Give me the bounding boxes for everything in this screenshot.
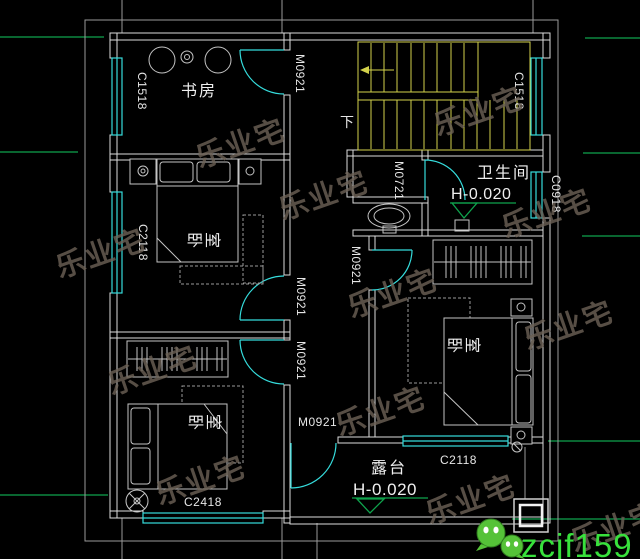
elevation-bathroom: H-0.020 <box>451 186 511 203</box>
room-label-bathroom: 卫生间 <box>477 164 531 182</box>
door-terrace <box>291 443 336 488</box>
watermark: 乐业宅 <box>519 294 618 356</box>
door-bedroom-mid <box>240 276 284 320</box>
wechat-id-text: zcjf159 <box>521 527 633 559</box>
room-label-terrace: 露台 <box>371 459 407 477</box>
room-label-study: 书房 <box>181 82 217 100</box>
stair-direction-arrow <box>360 66 394 74</box>
watermark: 乐业宅 <box>497 182 596 244</box>
watermark: 乐业宅 <box>421 468 520 530</box>
window-c2418-bottom <box>143 513 263 523</box>
study-furniture <box>149 47 231 73</box>
floor-plan-svg: 书房 卫生间 露台 卧室 卧室 卧室 H-0.020 H-0.020 M0921… <box>0 0 640 559</box>
door-bedroom-bottom <box>240 340 284 384</box>
door-label-m0721: M0721 <box>392 161 406 200</box>
window-label-c1518-left: C1518 <box>135 72 149 110</box>
window-label-c2118-terrace: C2118 <box>440 453 477 467</box>
watermark: 乐业宅 <box>51 222 150 284</box>
window-c1518-left <box>112 58 122 135</box>
door-label-m0921-right: M0921 <box>349 246 363 285</box>
door-study <box>240 50 284 94</box>
basin-pedestal <box>455 220 469 231</box>
watermark: 乐业宅 <box>429 80 528 142</box>
stair-down-label: 下 <box>340 114 355 130</box>
door-label-m0921-study: M0921 <box>293 54 307 93</box>
wechat-icon <box>476 519 525 559</box>
window-c1518-stairs <box>531 58 542 135</box>
bedroom-mid-furniture <box>130 159 263 284</box>
window-c2118-terrace <box>403 436 508 446</box>
door-label-m0921-bottom: M0921 <box>294 341 308 380</box>
elevation-terrace: H-0.020 <box>353 480 417 499</box>
door-label-m0921-mid: M0921 <box>294 277 308 316</box>
axis-lines <box>0 0 640 559</box>
floor-plan-canvas: 书房 卫生间 露台 卧室 卧室 卧室 H-0.020 H-0.020 M0921… <box>0 0 640 559</box>
door-label-m0921-terrace: M0921 <box>298 415 337 429</box>
watermark: 乐业宅 <box>274 164 373 226</box>
watermark: 乐业宅 <box>331 380 430 442</box>
